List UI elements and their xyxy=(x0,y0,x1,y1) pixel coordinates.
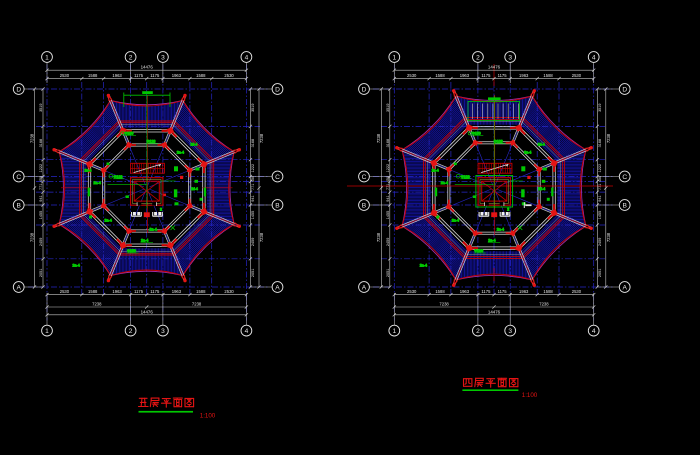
svg-text:1963: 1963 xyxy=(172,73,182,78)
svg-text:2051: 2051 xyxy=(39,269,43,277)
svg-text:7238: 7238 xyxy=(259,133,264,143)
svg-text:2d-4: 2d-4 xyxy=(538,187,545,191)
svg-text:3519: 3519 xyxy=(251,103,255,111)
svg-text:1175: 1175 xyxy=(150,289,160,294)
svg-text:1175: 1175 xyxy=(134,289,144,294)
svg-text:4: 4 xyxy=(245,328,249,335)
svg-text:1963: 1963 xyxy=(460,289,470,294)
svg-text:B: B xyxy=(362,202,367,209)
svg-text:1222: 1222 xyxy=(598,164,602,172)
svg-text:B: B xyxy=(16,202,21,209)
svg-text:2a-4: 2a-4 xyxy=(452,219,459,223)
svg-text:2: 2 xyxy=(160,208,162,212)
svg-text:450: 450 xyxy=(598,176,602,182)
svg-text:3519: 3519 xyxy=(386,103,390,111)
svg-text:1222: 1222 xyxy=(386,164,390,172)
svg-text:2a-4: 2a-4 xyxy=(141,239,148,243)
svg-text:2a-4: 2a-4 xyxy=(432,169,439,173)
svg-text:3168: 3168 xyxy=(39,139,43,147)
svg-text:C: C xyxy=(622,174,627,181)
svg-text:1222: 1222 xyxy=(251,164,255,172)
svg-text:4: 4 xyxy=(592,328,596,335)
svg-text:14476: 14476 xyxy=(141,309,154,314)
svg-text:1455: 1455 xyxy=(598,211,602,219)
svg-text:1588: 1588 xyxy=(88,289,98,294)
svg-text:Φ128: Φ128 xyxy=(114,175,123,179)
svg-text:Φ128: Φ128 xyxy=(147,139,156,143)
svg-text:2a-4: 2a-4 xyxy=(488,239,495,243)
svg-text:1455: 1455 xyxy=(251,211,255,219)
svg-text:7238: 7238 xyxy=(92,302,102,307)
svg-text:3519: 3519 xyxy=(598,103,602,111)
svg-text:7238: 7238 xyxy=(539,302,549,307)
svg-text:2530: 2530 xyxy=(572,289,582,294)
svg-text:1588: 1588 xyxy=(196,289,206,294)
svg-text:2: 2 xyxy=(129,328,133,335)
svg-text:2a-4: 2a-4 xyxy=(441,181,448,185)
svg-text:4: 4 xyxy=(592,54,596,61)
svg-text:1963: 1963 xyxy=(112,73,122,78)
svg-text:2a-4: 2a-4 xyxy=(150,227,157,231)
svg-text:7238: 7238 xyxy=(192,302,202,307)
svg-text:450: 450 xyxy=(251,176,255,182)
svg-text:2530: 2530 xyxy=(407,289,417,294)
svg-text:3: 3 xyxy=(508,328,512,335)
svg-text:Φ128: Φ128 xyxy=(461,175,470,179)
svg-text:1: 1 xyxy=(45,328,49,335)
svg-text:2530: 2530 xyxy=(60,289,70,294)
svg-text:450: 450 xyxy=(386,176,390,182)
svg-text:7238: 7238 xyxy=(606,133,611,143)
svg-text:2: 2 xyxy=(476,54,480,61)
svg-text:1175: 1175 xyxy=(498,289,508,294)
svg-text:1588: 1588 xyxy=(543,289,553,294)
svg-text:A: A xyxy=(362,284,367,291)
svg-text:2a-4: 2a-4 xyxy=(73,264,80,268)
svg-text:D: D xyxy=(275,86,280,93)
svg-text:3: 3 xyxy=(161,328,165,335)
svg-text:1963: 1963 xyxy=(460,73,470,78)
svg-text:941: 941 xyxy=(598,195,602,201)
svg-text:7238: 7238 xyxy=(259,232,264,242)
svg-text:14476: 14476 xyxy=(488,309,501,314)
svg-text:B: B xyxy=(622,202,627,209)
svg-text:2459: 2459 xyxy=(598,238,602,246)
svg-text:941: 941 xyxy=(251,195,255,201)
svg-text:1963: 1963 xyxy=(519,289,529,294)
svg-text:2530: 2530 xyxy=(407,73,417,78)
svg-text:D: D xyxy=(362,86,367,93)
svg-text:2a-4: 2a-4 xyxy=(177,151,184,155)
svg-text:7238: 7238 xyxy=(376,232,381,242)
svg-text:7238: 7238 xyxy=(376,133,381,143)
svg-text:2a-4: 2a-4 xyxy=(85,169,92,173)
svg-text:1588: 1588 xyxy=(435,289,445,294)
svg-text:2459: 2459 xyxy=(251,238,255,246)
svg-text:Φ150: Φ150 xyxy=(127,249,136,253)
svg-text:450: 450 xyxy=(39,176,43,182)
svg-text:3168: 3168 xyxy=(251,139,255,147)
svg-text:2: 2 xyxy=(476,328,480,335)
svg-text:771: 771 xyxy=(251,184,255,190)
svg-text:2a-4: 2a-4 xyxy=(420,264,427,268)
svg-text:Φ150: Φ150 xyxy=(472,132,481,136)
svg-text:3519: 3519 xyxy=(39,103,43,111)
svg-text:2d-4: 2d-4 xyxy=(191,187,198,191)
svg-text:3168: 3168 xyxy=(386,139,390,147)
svg-text:1175: 1175 xyxy=(481,73,491,78)
svg-text:1963: 1963 xyxy=(519,73,529,78)
svg-text:14476: 14476 xyxy=(141,65,154,70)
svg-text:1175: 1175 xyxy=(481,289,491,294)
svg-text:A: A xyxy=(275,284,280,291)
svg-text:A: A xyxy=(16,284,21,291)
svg-text:1455: 1455 xyxy=(39,211,43,219)
svg-text:941: 941 xyxy=(39,195,43,201)
svg-text:3: 3 xyxy=(508,54,512,61)
svg-text:Φ150: Φ150 xyxy=(474,249,483,253)
svg-text:2a-4: 2a-4 xyxy=(524,151,531,155)
svg-text:2051: 2051 xyxy=(386,269,390,277)
svg-text:1588: 1588 xyxy=(543,73,553,78)
svg-text:1175: 1175 xyxy=(150,73,160,78)
svg-text:1: 1 xyxy=(392,54,396,61)
svg-text:3168: 3168 xyxy=(598,139,602,147)
svg-text:2a-4: 2a-4 xyxy=(105,219,112,223)
svg-text:C: C xyxy=(362,174,367,181)
svg-text:1963: 1963 xyxy=(112,289,122,294)
svg-text:2: 2 xyxy=(129,54,133,61)
svg-text:1963: 1963 xyxy=(172,289,182,294)
svg-text:B: B xyxy=(275,202,280,209)
svg-text:771: 771 xyxy=(39,184,43,190)
svg-text:1588: 1588 xyxy=(435,73,445,78)
svg-text:2530: 2530 xyxy=(572,73,582,78)
svg-text:2: 2 xyxy=(507,208,509,212)
svg-text:1175: 1175 xyxy=(134,73,144,78)
svg-text:2530: 2530 xyxy=(60,73,70,78)
svg-text:2a-4: 2a-4 xyxy=(497,227,504,231)
svg-text:Φ150: Φ150 xyxy=(125,132,134,136)
svg-text:C: C xyxy=(275,174,280,181)
svg-text:2051: 2051 xyxy=(598,269,602,277)
svg-text:1: 1 xyxy=(45,54,49,61)
svg-text:1: 1 xyxy=(392,328,396,335)
svg-text:2a-4: 2a-4 xyxy=(94,181,101,185)
svg-text:771: 771 xyxy=(598,184,602,190)
svg-text:1588: 1588 xyxy=(196,73,206,78)
svg-text:941: 941 xyxy=(386,195,390,201)
svg-text:D: D xyxy=(622,86,627,93)
svg-text:2d-4: 2d-4 xyxy=(191,143,198,147)
svg-text:3: 3 xyxy=(161,54,165,61)
svg-text:2530: 2530 xyxy=(224,289,234,294)
svg-text:1175: 1175 xyxy=(498,73,508,78)
svg-text:1:100: 1:100 xyxy=(522,392,538,399)
svg-text:1588: 1588 xyxy=(88,73,98,78)
svg-text:C: C xyxy=(16,174,21,181)
svg-text:771: 771 xyxy=(386,184,390,190)
svg-text:7238: 7238 xyxy=(29,232,34,242)
svg-text:2d-4: 2d-4 xyxy=(538,143,545,147)
svg-text:2459: 2459 xyxy=(386,238,390,246)
svg-text:2051: 2051 xyxy=(251,269,255,277)
svg-text:2459: 2459 xyxy=(39,238,43,246)
svg-text:Φ128: Φ128 xyxy=(494,139,503,143)
svg-text:1455: 1455 xyxy=(386,211,390,219)
svg-text:2530: 2530 xyxy=(224,73,234,78)
svg-text:7238: 7238 xyxy=(29,133,34,143)
svg-text:4: 4 xyxy=(245,54,249,61)
svg-text:14476: 14476 xyxy=(488,65,501,70)
svg-text:7238: 7238 xyxy=(606,232,611,242)
svg-text:A: A xyxy=(622,284,627,291)
svg-text:1222: 1222 xyxy=(39,164,43,172)
svg-text:7238: 7238 xyxy=(439,302,449,307)
svg-text:1:100: 1:100 xyxy=(200,412,216,419)
svg-text:D: D xyxy=(16,86,21,93)
